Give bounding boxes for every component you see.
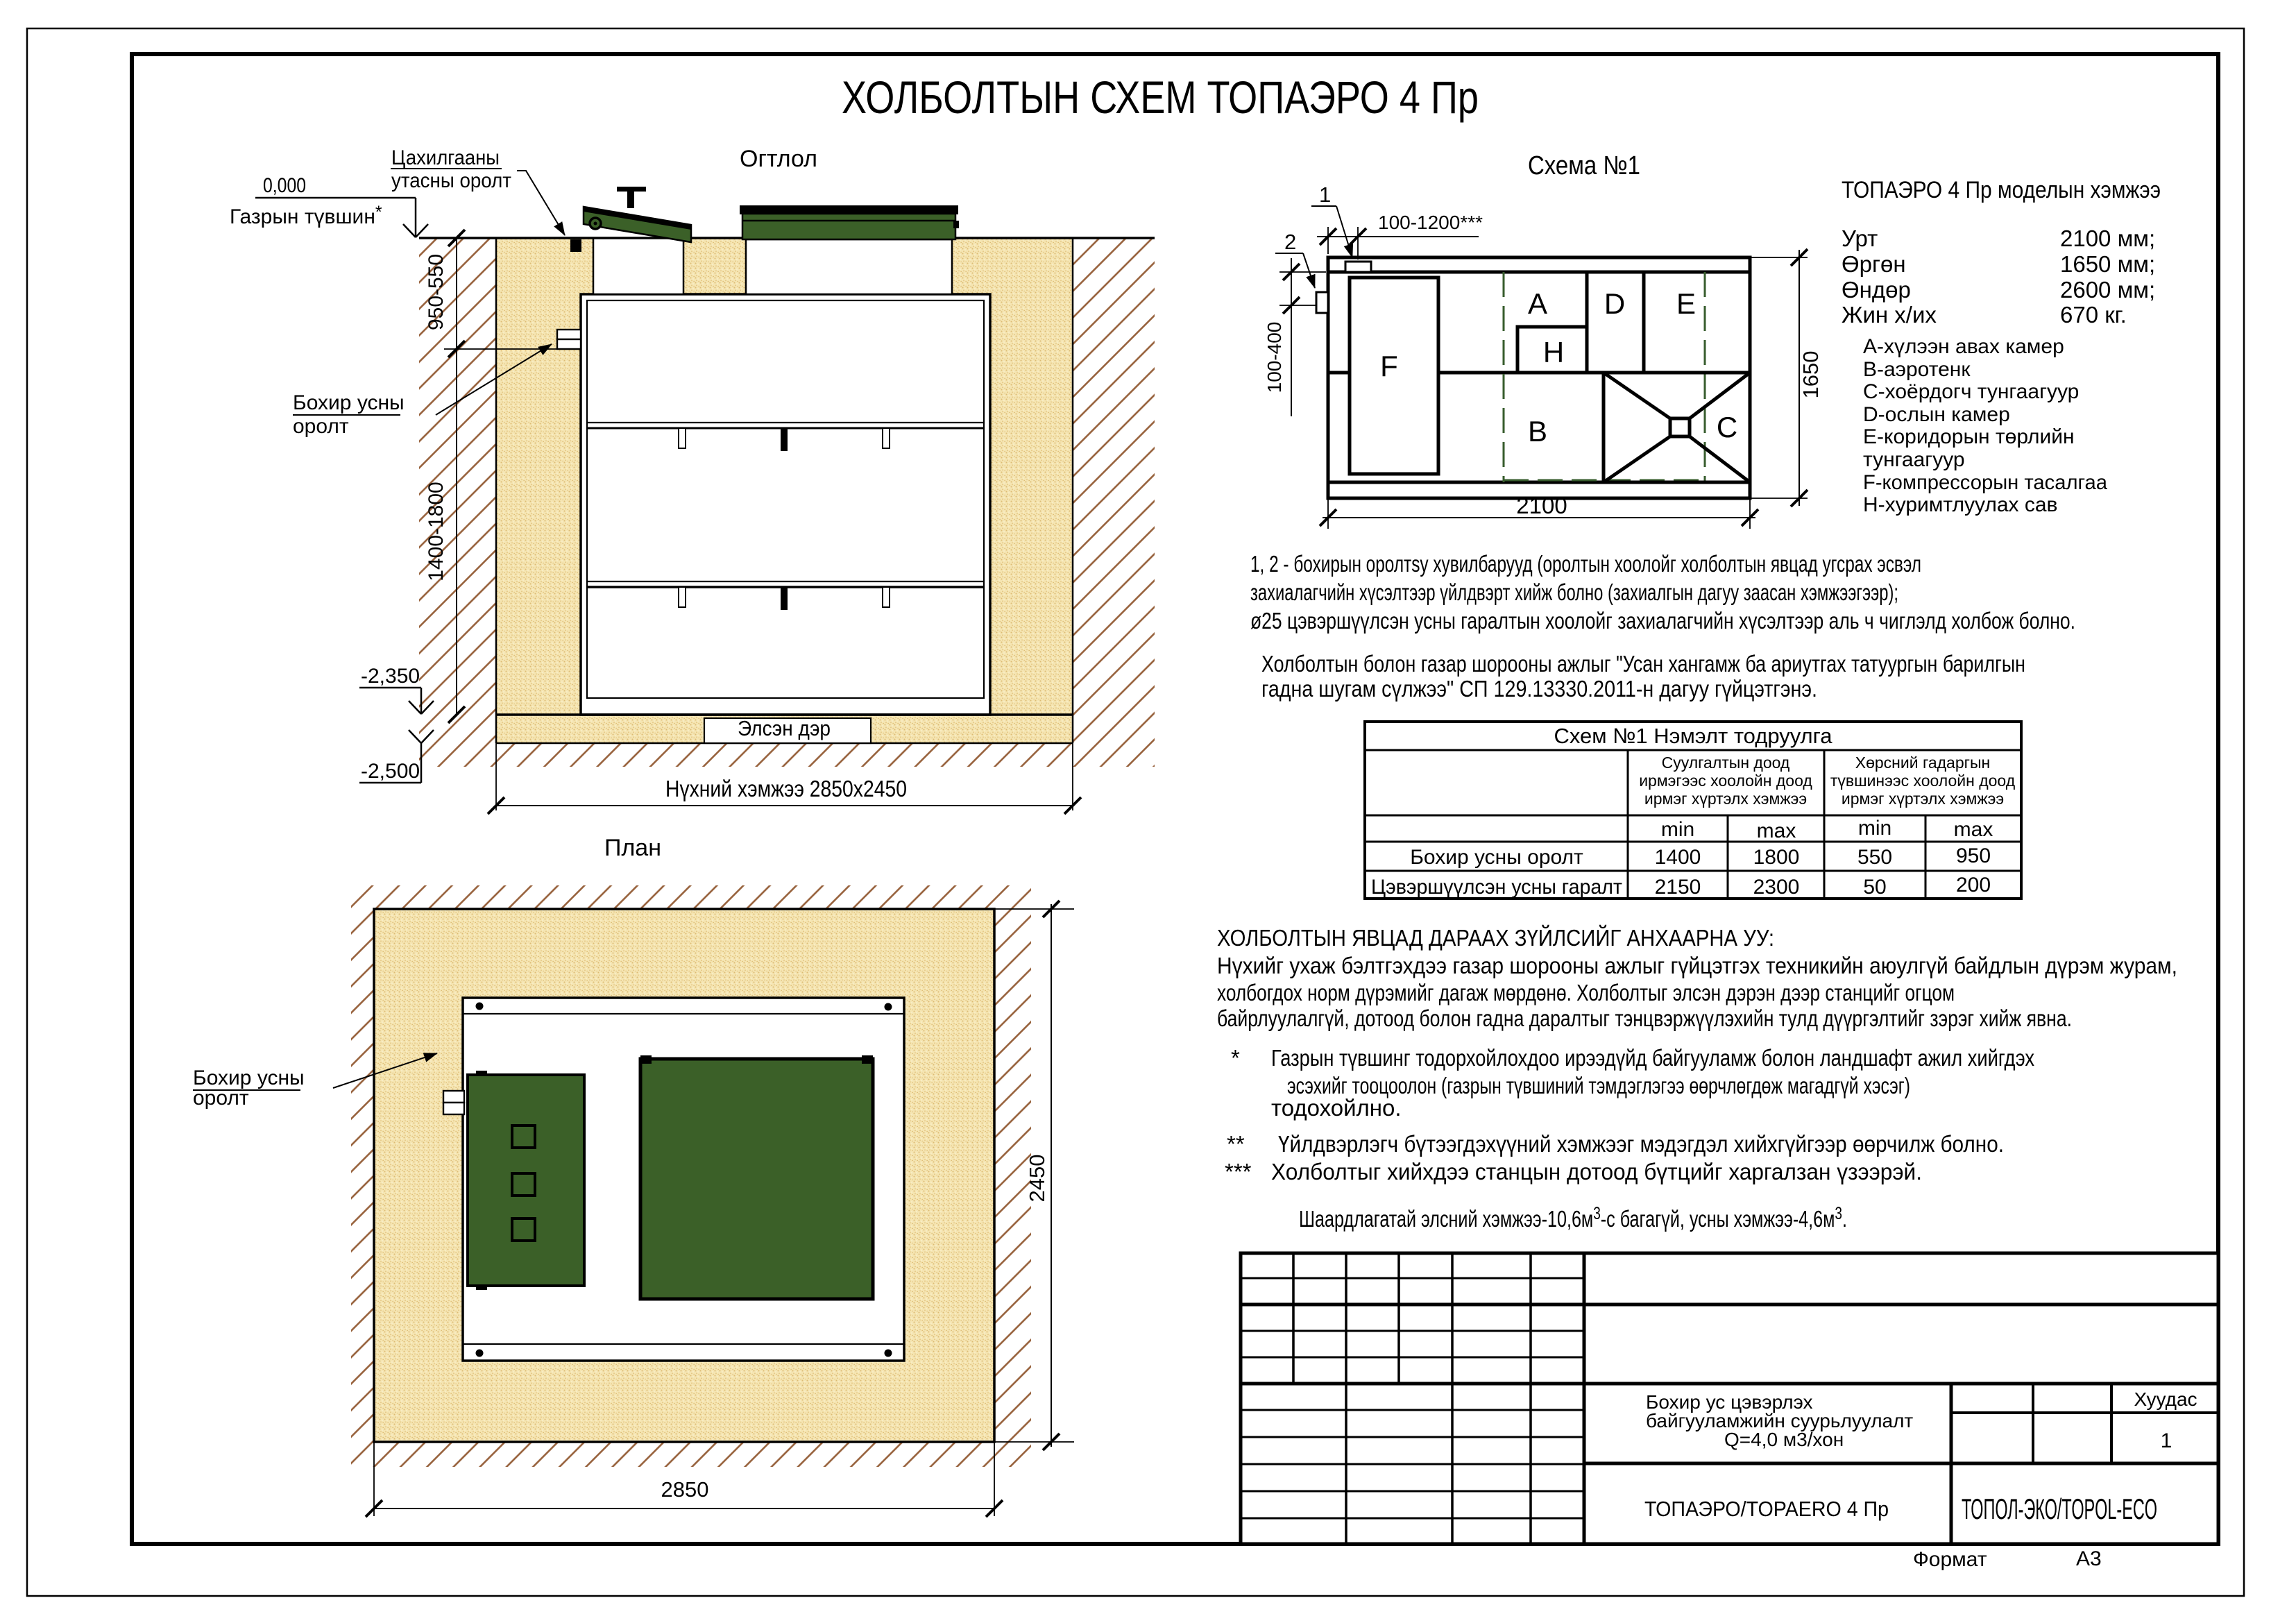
svg-text:min: min [1858,817,1891,840]
svg-text:F-компрессорын тасалгаа: F-компрессорын тасалгаа [1863,471,2107,494]
svg-text:550: 550 [1857,846,1892,869]
svg-text:ирмэгээс хоолойн доод: ирмэгээс хоолойн доод [1639,772,1812,790]
svg-text:H: H [1543,336,1564,368]
svg-text:1: 1 [2161,1429,2172,1452]
svg-text:Цэвэршүүлсэн усны гаралт: Цэвэршүүлсэн усны гаралт [1371,876,1622,899]
svg-text:**: ** [1227,1131,1245,1157]
svg-text:max: max [1757,819,1796,842]
svg-text:2850: 2850 [661,1477,709,1502]
svg-text:200: 200 [1956,874,1991,897]
svg-text:100-1200***: 100-1200*** [1378,212,1483,233]
svg-text:max: max [1954,818,1993,841]
svg-text:D: D [1604,287,1625,320]
svg-text:ТОПАЭРО/TOPAERO 4 Пр: ТОПАЭРО/TOPAERO 4 Пр [1644,1497,1889,1521]
svg-text:байрлуулалгүй, дотоод болон га: байрлуулалгүй, дотоод болон гадна даралт… [1217,1005,2072,1031]
svg-text:гадна шугам сүлжээ" СП 129.133: гадна шугам сүлжээ" СП 129.13330.2011-н … [1261,676,1817,702]
svg-text:тунгаагуур: тунгаагуур [1863,448,1965,471]
svg-text:тодохойлно.: тодохойлно. [1271,1095,1402,1121]
svg-text:-2,500: -2,500 [361,760,420,783]
svg-text:Өндөр: Өндөр [1842,277,1911,303]
svg-text:Холболтыг хийхдээ станцын дото: Холболтыг хийхдээ станцын дотоод бүтцийг… [1271,1159,1922,1184]
svg-text:2100: 2100 [1516,493,1567,518]
svg-text:План: План [604,835,661,861]
svg-text:0,000: 0,000 [263,174,306,197]
svg-text:оролт: оролт [193,1087,249,1110]
svg-text:100-400: 100-400 [1264,322,1285,393]
svg-text:1, 2 - бохирын оролтsу хувилба: 1, 2 - бохирын оролтsу хувилбарууд (орол… [1250,551,1921,577]
svg-text:950-550: 950-550 [425,254,448,330]
svg-text:F: F [1380,350,1398,382]
svg-text:2: 2 [1284,230,1296,254]
svg-text:1800: 1800 [1753,846,1800,869]
svg-text:ТОПАЭРО 4 Пр моделын хэмжээ: ТОПАЭРО 4 Пр моделын хэмжээ [1842,177,2161,203]
svg-text:Суулгалтын доод: Суулгалтын доод [1662,754,1790,772]
svg-text:2100 мм;: 2100 мм; [2060,226,2155,251]
svg-text:Q=4,0 м3/хон: Q=4,0 м3/хон [1724,1429,1844,1450]
svg-text:A: A [1528,287,1547,320]
svg-text:ирмэг хүртэлх хэмжээ: ирмэг хүртэлх хэмжээ [1842,790,2004,808]
svg-text:E: E [1676,287,1696,320]
svg-text:Үйлдвэрлэгч бүтээгдэхүүний хэм: Үйлдвэрлэгч бүтээгдэхүүний хэмжээг мэдэг… [1278,1131,2004,1157]
svg-text:670 кг.: 670 кг. [2060,302,2127,328]
svg-text:ø25 цэвэршүүлсэн усны гаралтын: ø25 цэвэршүүлсэн усны гаралтын хоолойг з… [1250,608,2075,634]
svg-text:Схема №1: Схема №1 [1528,151,1640,180]
svg-text:Бохир усны: Бохир усны [293,391,405,414]
svg-text:50: 50 [1863,876,1886,899]
svg-text:В-аэротенк: В-аэротенк [1863,358,1971,381]
svg-text:утасны оролт: утасны оролт [391,169,511,192]
svg-text:А3: А3 [2076,1547,2102,1570]
svg-text:Нүхийг ухаж бэлтгэхдээ газар ш: Нүхийг ухаж бэлтгэхдээ газар шорооны ажл… [1217,953,2177,978]
svg-text:min: min [1661,818,1694,841]
svg-text:Өргөн: Өргөн [1842,251,1906,277]
svg-text:-2,350: -2,350 [361,665,420,688]
svg-text:2600 мм;: 2600 мм; [2060,277,2155,303]
svg-text:C: C [1717,411,1737,443]
svg-text:оролт: оролт [293,415,349,438]
svg-text:1400: 1400 [1655,846,1701,869]
svg-text:Нүхний хэмжээ 2850х2450: Нүхний хэмжээ 2850х2450 [665,776,907,801]
svg-text:***: *** [1225,1159,1252,1184]
svg-text:С-хоёрдогч тунгаагуур: С-хоёрдогч тунгаагуур [1863,380,2079,403]
svg-text:ХОЛБОЛТЫН ЯВЦАД ДАРААХ ЗҮЙЛ: ХОЛБОЛТЫН ЯВЦАД ДАРААХ ЗҮЙЛСИЙГ АНХААРНА… [1217,925,1774,951]
svg-text:Хөрсний гадаргын: Хөрсний гадаргын [1855,754,1991,772]
svg-text:Элсэн дэр: Элсэн дэр [738,716,831,740]
svg-text:2450: 2450 [1025,1155,1049,1203]
svg-text:Бохир усны оролт: Бохир усны оролт [1410,846,1583,869]
svg-text:Урт: Урт [1842,226,1878,251]
svg-text:түвшинээс хоолойн доод: түвшинээс хоолойн доод [1830,772,2016,790]
svg-text:Шаардлагатай элсний хэмжээ-10,: Шаардлагатай элсний хэмжээ-10,6м3-с бага… [1299,1204,1847,1232]
svg-text:Газрын түвшинг тодорхойлохдоо: Газрын түвшинг тодорхойлохдоо ирээдүйд б… [1271,1045,2034,1071]
svg-text:D-ослын камер: D-ослын камер [1863,403,2010,426]
svg-text:Хуудас: Хуудас [2134,1388,2197,1410]
svg-text:2150: 2150 [1655,876,1701,899]
svg-text:950: 950 [1956,844,1991,867]
svg-text:холбогдох норм дүрэмийг дагаж: холбогдох норм дүрэмийг дагаж мөрдөнө. Х… [1217,980,1955,1005]
svg-text:1650: 1650 [1798,351,1823,399]
svg-text:ирмэг хүртэлх хэмжээ: ирмэг хүртэлх хэмжээ [1644,790,1807,808]
svg-text:Цахилгааны: Цахилгааны [391,146,500,169]
svg-text:Жин х/их: Жин х/их [1842,302,1937,328]
svg-text:Огтлол: Огтлол [740,146,817,172]
svg-text:Холболтын болон газар шорооны: Холболтын болон газар шорооны ажлыг "Уса… [1261,651,2025,677]
svg-text:Н-хуримтлуулах сав: Н-хуримтлуулах сав [1863,493,2057,516]
svg-text:ТОПОЛ-ЭКО/TOPOL-ECO: ТОПОЛ-ЭКО/TOPOL-ECO [1962,1493,2157,1525]
svg-text:1: 1 [1319,182,1331,207]
svg-text:захиалагчийн хүсэлтээр үйлдвэр: захиалагчийн хүсэлтээр үйлдвэрт хийж бол… [1250,579,1898,605]
svg-text:2300: 2300 [1753,876,1800,899]
svg-text:1650 мм;: 1650 мм; [2060,251,2155,277]
svg-text:Формат: Формат [1913,1548,1987,1571]
svg-text:*: * [1231,1045,1240,1071]
svg-text:ХОЛБОЛТЫН СХЕМ ТОПАЭРО 4 П: ХОЛБОЛТЫН СХЕМ ТОПАЭРО 4 Пр [842,71,1479,123]
svg-text:Схем №1 Нэмэлт тодруулга: Схем №1 Нэмэлт тодруулга [1554,724,1832,748]
svg-text:А-хүлээн авах камер: А-хүлээн авах камер [1863,335,2064,358]
svg-text:Е-коридорын төрлийн: Е-коридорын төрлийн [1863,425,2075,448]
svg-text:B: B [1528,415,1547,448]
svg-text:Газрын түвшин*: Газрын түвшин* [230,203,382,228]
svg-text:1400-1800: 1400-1800 [425,482,448,581]
